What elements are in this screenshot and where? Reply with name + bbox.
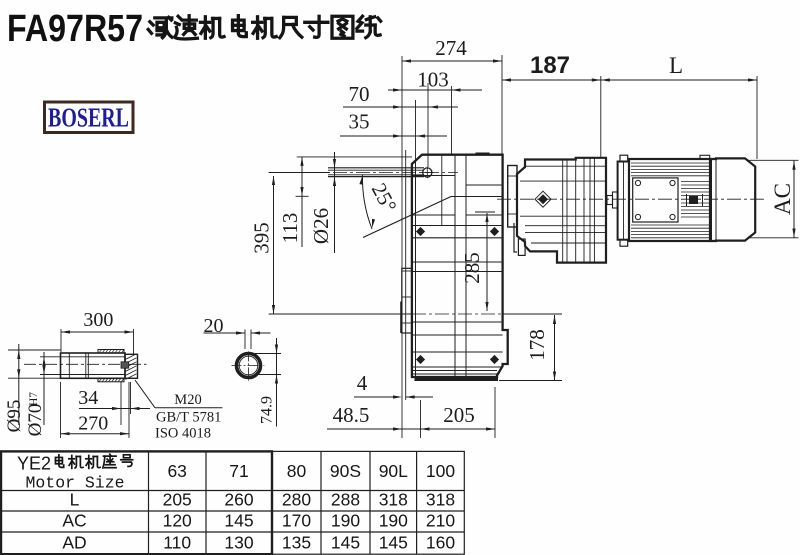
- svg-text:187: 187: [530, 52, 570, 79]
- svg-text:395: 395: [250, 222, 274, 254]
- svg-text:190: 190: [379, 511, 408, 531]
- svg-text:110: 110: [163, 533, 191, 553]
- svg-text:103: 103: [417, 68, 449, 92]
- svg-text:70: 70: [349, 82, 370, 106]
- svg-text:34: 34: [78, 387, 98, 409]
- svg-text:205: 205: [163, 490, 192, 510]
- svg-text:Ø95: Ø95: [4, 400, 25, 433]
- svg-text:288: 288: [331, 490, 360, 510]
- svg-text:FA97R57: FA97R57: [7, 8, 143, 50]
- svg-text:M20: M20: [174, 392, 201, 408]
- svg-text:270: 270: [78, 413, 108, 435]
- svg-text:113: 113: [278, 213, 302, 244]
- svg-text:160: 160: [426, 533, 455, 553]
- svg-text:48.5: 48.5: [333, 403, 370, 427]
- svg-text:L: L: [669, 53, 683, 78]
- svg-text:318: 318: [379, 490, 408, 510]
- svg-text:Ø26: Ø26: [309, 208, 333, 244]
- svg-text:90S: 90S: [330, 461, 361, 481]
- svg-text:Ø70: Ø70: [25, 404, 46, 437]
- svg-text:120: 120: [163, 511, 192, 531]
- svg-text:100: 100: [426, 461, 455, 481]
- svg-text:145: 145: [331, 533, 360, 553]
- svg-text:80: 80: [287, 461, 307, 481]
- svg-text:205: 205: [443, 403, 475, 427]
- svg-text:145: 145: [379, 533, 408, 553]
- svg-text:YE2: YE2: [17, 454, 51, 474]
- svg-text:274: 274: [435, 36, 467, 60]
- svg-text:GB/T 5781: GB/T 5781: [156, 410, 221, 426]
- svg-text:AC: AC: [770, 183, 795, 215]
- svg-text:260: 260: [224, 490, 253, 510]
- svg-text:190: 190: [331, 511, 360, 531]
- svg-text:178: 178: [525, 329, 549, 361]
- svg-text:H7: H7: [28, 392, 40, 406]
- svg-text:71: 71: [229, 461, 248, 481]
- svg-text:20: 20: [204, 315, 224, 337]
- svg-text:280: 280: [282, 490, 311, 510]
- svg-text:318: 318: [426, 490, 455, 510]
- svg-text:L: L: [70, 490, 80, 510]
- svg-text:4: 4: [357, 371, 368, 395]
- svg-text:300: 300: [83, 309, 113, 331]
- svg-text:ISO 4018: ISO 4018: [155, 426, 211, 442]
- svg-text:210: 210: [426, 511, 455, 531]
- svg-text:35: 35: [349, 110, 370, 134]
- svg-text:145: 145: [224, 511, 253, 531]
- svg-text:90L: 90L: [379, 461, 408, 481]
- svg-text:AD: AD: [62, 533, 86, 553]
- svg-text:BOSERL: BOSERL: [48, 103, 129, 133]
- svg-text:74.9: 74.9: [259, 396, 276, 424]
- svg-text:285: 285: [460, 252, 484, 284]
- svg-text:AC: AC: [62, 511, 86, 531]
- svg-text:170: 170: [282, 511, 311, 531]
- svg-text:130: 130: [224, 533, 253, 553]
- svg-text:135: 135: [282, 533, 311, 553]
- svg-text:63: 63: [167, 461, 186, 481]
